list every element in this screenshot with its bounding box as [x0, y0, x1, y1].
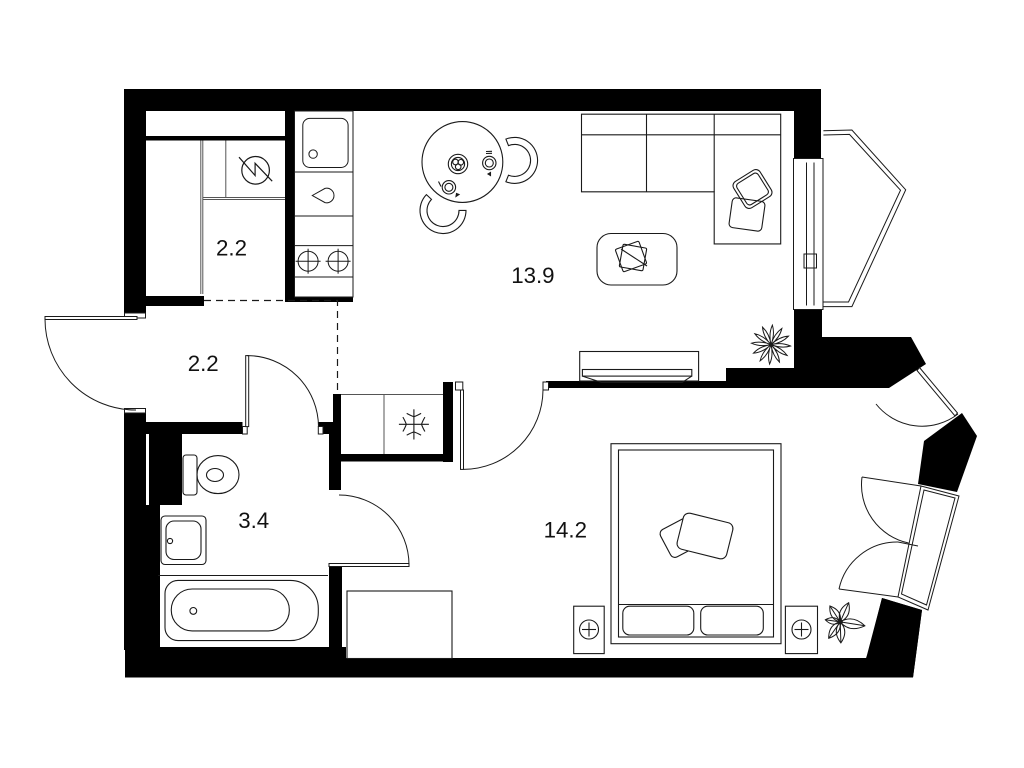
svg-text:2.2: 2.2: [216, 235, 247, 260]
svg-text:14.2: 14.2: [544, 518, 587, 543]
svg-text:2.2: 2.2: [188, 351, 219, 376]
svg-text:13.9: 13.9: [511, 263, 554, 288]
svg-text:3.4: 3.4: [238, 508, 269, 533]
